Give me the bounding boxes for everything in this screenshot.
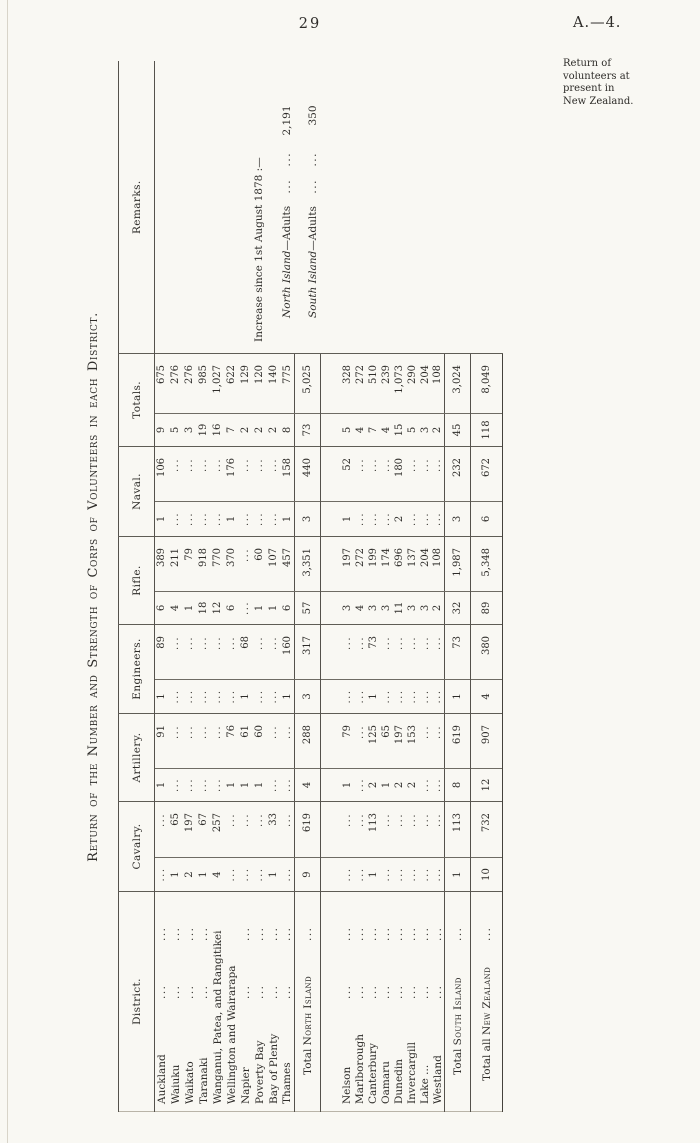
corps-count-cell: ... bbox=[354, 679, 367, 713]
strength-cell: ... bbox=[380, 624, 393, 679]
district-cell: Auckland...... bbox=[155, 892, 169, 1112]
remarks-content: Increase since 1st August 1878 :— North … bbox=[253, 71, 322, 342]
strength-cell: ... bbox=[253, 801, 267, 857]
strength-cell: 176 bbox=[225, 446, 239, 501]
strength-cell: 33 bbox=[267, 801, 281, 857]
strength-cell: 317 bbox=[295, 624, 321, 679]
strength-cell: 65 bbox=[380, 713, 393, 768]
strength-cell: ... bbox=[380, 801, 393, 857]
corps-count-cell: ... bbox=[380, 858, 393, 892]
strength-cell: 60 bbox=[253, 713, 267, 768]
strength-cell: 61 bbox=[239, 713, 253, 768]
corps-count-cell: 1 bbox=[197, 858, 211, 892]
col-header-district: District. bbox=[119, 892, 155, 1112]
corps-count-cell: 1 bbox=[267, 858, 281, 892]
strength-cell: ... bbox=[354, 713, 367, 768]
rotated-table-block: Return of the Number and Strength of Cor… bbox=[86, 62, 503, 1112]
corps-count-cell: 2 bbox=[253, 413, 267, 446]
district-cell: Westland...... bbox=[432, 892, 445, 1112]
corps-count-cell: 3 bbox=[419, 591, 432, 624]
strength-cell: ... bbox=[432, 713, 445, 768]
strength-cell: ... bbox=[341, 624, 354, 679]
strength-cell: 3,351 bbox=[295, 536, 321, 591]
corps-count-cell: 5 bbox=[169, 413, 183, 446]
corps-count-cell: ... bbox=[419, 768, 432, 801]
corps-count-cell: 4 bbox=[354, 591, 367, 624]
corps-count-cell: 2 bbox=[393, 501, 406, 536]
corps-count-cell: 4 bbox=[471, 679, 503, 713]
corps-count-cell: 1 bbox=[155, 679, 169, 713]
corps-count-cell: ... bbox=[183, 768, 197, 801]
strength-cell: 696 bbox=[393, 536, 406, 591]
strength-cell: 328 bbox=[341, 353, 354, 413]
corps-count-cell: ... bbox=[169, 768, 183, 801]
corps-count-cell: 7 bbox=[367, 413, 380, 446]
corps-count-cell: 2 bbox=[183, 858, 197, 892]
strength-cell: 272 bbox=[354, 353, 367, 413]
corps-count-cell: ... bbox=[267, 679, 281, 713]
corps-count-cell: 2 bbox=[406, 768, 419, 801]
corps-count-cell: ... bbox=[183, 679, 197, 713]
strength-cell: ... bbox=[341, 801, 354, 857]
district-cell: Wellington and Wairarapa bbox=[225, 892, 239, 1112]
strength-cell: ... bbox=[354, 801, 367, 857]
strength-cell: ... bbox=[169, 624, 183, 679]
corps-count-cell: 3 bbox=[406, 591, 419, 624]
district-cell: Total all New Zealand... bbox=[471, 892, 503, 1112]
corps-count-cell: ... bbox=[406, 858, 419, 892]
volunteers-table: District. Cavalry. Artillery. Engineers.… bbox=[118, 61, 503, 1112]
strength-cell: 79 bbox=[341, 713, 354, 768]
district-cell: Bay of Plenty...... bbox=[267, 892, 281, 1112]
corps-count-cell: ... bbox=[406, 501, 419, 536]
col-header-remarks: Remarks. bbox=[119, 61, 155, 353]
strength-cell: 158 bbox=[281, 446, 295, 501]
corps-count-cell: 8 bbox=[281, 413, 295, 446]
strength-cell: ... bbox=[267, 713, 281, 768]
corps-count-cell: 19 bbox=[197, 413, 211, 446]
strength-cell: 389 bbox=[155, 536, 169, 591]
strength-cell: 272 bbox=[354, 536, 367, 591]
corps-count-cell: 3 bbox=[295, 679, 321, 713]
strength-cell: 8,049 bbox=[471, 353, 503, 413]
corps-count-cell: 4 bbox=[295, 768, 321, 801]
strength-cell: 510 bbox=[367, 353, 380, 413]
strength-cell: ... bbox=[169, 446, 183, 501]
strength-cell: 775 bbox=[281, 353, 295, 413]
strength-cell: ... bbox=[406, 801, 419, 857]
strength-cell: 440 bbox=[295, 446, 321, 501]
strength-cell: ... bbox=[197, 446, 211, 501]
strength-cell: ... bbox=[155, 801, 169, 857]
corps-count-cell: 11 bbox=[393, 591, 406, 624]
district-cell: Total North Island... bbox=[295, 892, 321, 1112]
corps-count-cell: 3 bbox=[367, 591, 380, 624]
leader-dots: ... bbox=[279, 179, 296, 194]
strength-cell: 732 bbox=[471, 801, 503, 857]
strength-cell: ... bbox=[354, 446, 367, 501]
corps-count-cell: 5 bbox=[406, 413, 419, 446]
strength-cell: 619 bbox=[445, 713, 471, 768]
corps-count-cell: ... bbox=[253, 501, 267, 536]
col-header-rifle: Rifle. bbox=[119, 536, 155, 624]
corps-count-cell: ... bbox=[393, 679, 406, 713]
strength-cell: ... bbox=[380, 446, 393, 501]
strength-cell: 3,024 bbox=[445, 353, 471, 413]
strength-cell: 257 bbox=[211, 801, 225, 857]
district-cell: Total South Island... bbox=[445, 892, 471, 1112]
corps-count-cell: ... bbox=[341, 858, 354, 892]
leader-dots: ... bbox=[305, 179, 322, 194]
strength-cell: 108 bbox=[432, 353, 445, 413]
corps-count-cell: ... bbox=[341, 679, 354, 713]
document-page: 29 A.—4. Return of volunteers at present… bbox=[0, 0, 700, 1143]
strength-cell bbox=[321, 536, 341, 591]
strength-cell: 1,987 bbox=[445, 536, 471, 591]
page-number: 29 bbox=[0, 16, 620, 32]
corps-count-cell bbox=[321, 501, 341, 536]
corps-count-cell: 1 bbox=[169, 858, 183, 892]
strength-cell: 288 bbox=[295, 713, 321, 768]
corps-count-cell: ... bbox=[354, 501, 367, 536]
corps-count-cell: 1 bbox=[253, 591, 267, 624]
strength-cell: ... bbox=[239, 446, 253, 501]
strength-cell: ... bbox=[239, 801, 253, 857]
strength-cell: 153 bbox=[406, 713, 419, 768]
strength-cell: 113 bbox=[367, 801, 380, 857]
strength-cell: 211 bbox=[169, 536, 183, 591]
strength-cell: ... bbox=[281, 713, 295, 768]
col-header-totals: Totals. bbox=[119, 353, 155, 446]
corps-count-cell: ... bbox=[367, 501, 380, 536]
strength-cell: 52 bbox=[341, 446, 354, 501]
strength-cell: 1,027 bbox=[211, 353, 225, 413]
strength-cell: 672 bbox=[471, 446, 503, 501]
strength-cell: 907 bbox=[471, 713, 503, 768]
corps-count-cell: 1 bbox=[239, 679, 253, 713]
strength-cell: 60 bbox=[253, 536, 267, 591]
corps-count-cell: ... bbox=[155, 858, 169, 892]
strength-cell: 140 bbox=[267, 353, 281, 413]
corps-count-cell: ... bbox=[354, 768, 367, 801]
strength-cell: 89 bbox=[155, 624, 169, 679]
corps-count-cell: ... bbox=[281, 768, 295, 801]
corps-count-cell: ... bbox=[267, 768, 281, 801]
strength-cell: ... bbox=[253, 624, 267, 679]
corps-count-cell: 3 bbox=[380, 591, 393, 624]
strength-cell bbox=[321, 624, 341, 679]
corps-count-cell: ... bbox=[380, 679, 393, 713]
corps-count-cell: 8 bbox=[445, 768, 471, 801]
corps-count-cell: ... bbox=[406, 679, 419, 713]
corps-count-cell: ... bbox=[281, 858, 295, 892]
strength-cell: 65 bbox=[169, 801, 183, 857]
corps-count-cell: 1 bbox=[225, 501, 239, 536]
col-header-naval: Naval. bbox=[119, 446, 155, 536]
strength-cell: ... bbox=[419, 713, 432, 768]
corps-count-cell: ... bbox=[354, 858, 367, 892]
col-header-engineers: Engineers. bbox=[119, 624, 155, 713]
strength-cell: ... bbox=[239, 536, 253, 591]
corps-count-cell: 4 bbox=[380, 413, 393, 446]
corps-count-cell: ... bbox=[239, 858, 253, 892]
corps-count-cell: 3 bbox=[419, 413, 432, 446]
corps-count-cell: 1 bbox=[281, 501, 295, 536]
corps-count-cell: ... bbox=[432, 768, 445, 801]
corps-count-cell: 9 bbox=[155, 413, 169, 446]
corps-count-cell: 1 bbox=[380, 768, 393, 801]
strength-cell: 918 bbox=[197, 536, 211, 591]
strength-cell: 619 bbox=[295, 801, 321, 857]
district-cell: Thames...... bbox=[281, 892, 295, 1112]
corps-count-cell bbox=[321, 679, 341, 713]
corps-count-cell: 1 bbox=[225, 768, 239, 801]
strength-cell: 380 bbox=[471, 624, 503, 679]
strength-cell: 457 bbox=[281, 536, 295, 591]
strength-cell: ... bbox=[419, 624, 432, 679]
corps-count-cell: ... bbox=[253, 858, 267, 892]
strength-cell: ... bbox=[183, 446, 197, 501]
corps-count-cell: 6 bbox=[225, 591, 239, 624]
corps-count-cell: 12 bbox=[211, 591, 225, 624]
strength-cell: ... bbox=[267, 624, 281, 679]
strength-cell: 204 bbox=[419, 353, 432, 413]
strength-cell: ... bbox=[281, 801, 295, 857]
strength-cell: 106 bbox=[155, 446, 169, 501]
strength-cell: ... bbox=[169, 713, 183, 768]
strength-cell: ... bbox=[225, 624, 239, 679]
strength-cell: 125 bbox=[367, 713, 380, 768]
corps-count-cell: 4 bbox=[354, 413, 367, 446]
strength-cell: 770 bbox=[211, 536, 225, 591]
district-cell: Oamaru...... bbox=[380, 892, 393, 1112]
col-header-artillery: Artillery. bbox=[119, 713, 155, 801]
corps-count-cell: ... bbox=[419, 501, 432, 536]
strength-cell: 675 bbox=[155, 353, 169, 413]
corps-count-cell: 1 bbox=[445, 679, 471, 713]
strength-cell: ... bbox=[406, 446, 419, 501]
district-cell: Canterbury...... bbox=[367, 892, 380, 1112]
strength-cell: ... bbox=[393, 624, 406, 679]
strength-cell: ... bbox=[367, 446, 380, 501]
strength-cell: ... bbox=[197, 713, 211, 768]
corps-count-cell: ... bbox=[253, 679, 267, 713]
strength-cell: ... bbox=[432, 801, 445, 857]
corps-count-cell: 2 bbox=[393, 768, 406, 801]
corps-count-cell: 6 bbox=[281, 591, 295, 624]
corps-count-cell: 118 bbox=[471, 413, 503, 446]
corps-count-cell: 32 bbox=[445, 591, 471, 624]
corps-count-cell: 45 bbox=[445, 413, 471, 446]
strength-cell: ... bbox=[183, 713, 197, 768]
remarks-line-south: South Island—Adults ...... 350 bbox=[305, 105, 322, 318]
strength-cell: 79 bbox=[183, 536, 197, 591]
district-cell: Wanganui, Patea, and Rangitikei bbox=[211, 892, 225, 1112]
corps-count-cell: 2 bbox=[367, 768, 380, 801]
strength-cell: ... bbox=[393, 801, 406, 857]
district-cell: Taranaki...... bbox=[197, 892, 211, 1112]
district-cell: Marlborough...... bbox=[354, 892, 367, 1112]
strength-cell: ... bbox=[211, 446, 225, 501]
corps-count-cell: 3 bbox=[445, 501, 471, 536]
corps-count-cell: 1 bbox=[155, 768, 169, 801]
remarks-value: 350 bbox=[305, 105, 322, 139]
corps-count-cell: 2 bbox=[432, 591, 445, 624]
corps-count-cell: 6 bbox=[155, 591, 169, 624]
corps-count-cell: 1 bbox=[281, 679, 295, 713]
corps-count-cell: ... bbox=[211, 679, 225, 713]
col-header-cavalry: Cavalry. bbox=[119, 801, 155, 891]
corps-count-cell bbox=[321, 858, 341, 892]
strength-cell: ... bbox=[419, 801, 432, 857]
corps-count-cell: 4 bbox=[169, 591, 183, 624]
header-row: District. Cavalry. Artillery. Engineers.… bbox=[119, 61, 155, 1111]
strength-cell: 67 bbox=[197, 801, 211, 857]
table-title: Return of the Number and Strength of Cor… bbox=[86, 62, 108, 1112]
corps-count-cell: 9 bbox=[295, 858, 321, 892]
remarks-cell: Increase since 1st August 1878 :— North … bbox=[155, 61, 503, 353]
leader-dots: ... bbox=[279, 152, 296, 167]
corps-count-cell: 73 bbox=[295, 413, 321, 446]
corps-count-cell: 15 bbox=[393, 413, 406, 446]
strength-cell: 370 bbox=[225, 536, 239, 591]
strength-cell: 120 bbox=[253, 353, 267, 413]
strength-cell: 137 bbox=[406, 536, 419, 591]
strength-cell bbox=[321, 713, 341, 768]
corps-count-cell: 1 bbox=[367, 858, 380, 892]
remarks-heading: Increase since 1st August 1878 :— bbox=[253, 71, 265, 342]
strength-cell: 5,025 bbox=[295, 353, 321, 413]
district-cell: Waiuku...... bbox=[169, 892, 183, 1112]
district-cell: Poverty Bay...... bbox=[253, 892, 267, 1112]
corps-count-cell: ... bbox=[267, 501, 281, 536]
strength-cell: 199 bbox=[367, 536, 380, 591]
corps-count-cell: ... bbox=[432, 858, 445, 892]
strength-cell: 204 bbox=[419, 536, 432, 591]
margin-sidenote: Return of volunteers at present in New Z… bbox=[563, 58, 663, 108]
remarks-value: 2,191 bbox=[279, 105, 296, 139]
corps-count-cell: ... bbox=[197, 501, 211, 536]
paper-reference: A.—4. bbox=[573, 15, 621, 31]
corps-count-cell: ... bbox=[169, 679, 183, 713]
district-cell: Invercargill...... bbox=[406, 892, 419, 1112]
corps-count-cell bbox=[321, 591, 341, 624]
corps-count-cell: 18 bbox=[197, 591, 211, 624]
strength-cell: ... bbox=[432, 446, 445, 501]
corps-count-cell: 3 bbox=[341, 591, 354, 624]
strength-cell: 276 bbox=[183, 353, 197, 413]
strength-cell: 197 bbox=[393, 713, 406, 768]
corps-count-cell: 16 bbox=[211, 413, 225, 446]
corps-count-cell: 1 bbox=[445, 858, 471, 892]
corps-count-cell: 7 bbox=[225, 413, 239, 446]
strength-cell: 985 bbox=[197, 353, 211, 413]
corps-count-cell: ... bbox=[432, 501, 445, 536]
strength-cell: ... bbox=[406, 624, 419, 679]
strength-cell: 174 bbox=[380, 536, 393, 591]
strength-cell: 622 bbox=[225, 353, 239, 413]
district-cell: Waikato...... bbox=[183, 892, 197, 1112]
strength-cell: ... bbox=[253, 446, 267, 501]
strength-cell: ... bbox=[225, 801, 239, 857]
corps-count-cell: ... bbox=[419, 858, 432, 892]
leader-dots: ... bbox=[305, 152, 322, 167]
district-cell: Napier...... bbox=[239, 892, 253, 1112]
corps-count-cell: 1 bbox=[341, 768, 354, 801]
corps-count-cell: 1 bbox=[267, 591, 281, 624]
strength-cell: 232 bbox=[445, 446, 471, 501]
remarks-line-north: North Island—Adults ...... 2,191 bbox=[279, 105, 296, 318]
strength-cell: 197 bbox=[341, 536, 354, 591]
corps-count-cell: 1 bbox=[155, 501, 169, 536]
corps-count-cell: ... bbox=[239, 591, 253, 624]
strength-cell: 73 bbox=[445, 624, 471, 679]
corps-count-cell: ... bbox=[211, 768, 225, 801]
strength-cell: 129 bbox=[239, 353, 253, 413]
corps-count-cell: 3 bbox=[295, 501, 321, 536]
corps-count-cell: 1 bbox=[239, 768, 253, 801]
strength-cell: 91 bbox=[155, 713, 169, 768]
corps-count-cell: 10 bbox=[471, 858, 503, 892]
corps-count-cell: ... bbox=[380, 501, 393, 536]
strength-cell bbox=[321, 353, 341, 413]
strength-cell: ... bbox=[211, 713, 225, 768]
strength-cell bbox=[321, 446, 341, 501]
corps-count-cell: ... bbox=[197, 768, 211, 801]
strength-cell: 1,073 bbox=[393, 353, 406, 413]
strength-cell: 73 bbox=[367, 624, 380, 679]
corps-count-cell: ... bbox=[211, 501, 225, 536]
strength-cell: 76 bbox=[225, 713, 239, 768]
corps-count-cell: ... bbox=[183, 501, 197, 536]
corps-count-cell: 1 bbox=[183, 591, 197, 624]
strength-cell: 197 bbox=[183, 801, 197, 857]
strength-cell: ... bbox=[197, 624, 211, 679]
corps-count-cell: 6 bbox=[471, 501, 503, 536]
corps-count-cell: ... bbox=[197, 679, 211, 713]
strength-cell: 113 bbox=[445, 801, 471, 857]
corps-count-cell: 1 bbox=[253, 768, 267, 801]
corps-count-cell: ... bbox=[225, 679, 239, 713]
corps-count-cell: 12 bbox=[471, 768, 503, 801]
corps-count-cell: ... bbox=[432, 679, 445, 713]
strength-cell: 160 bbox=[281, 624, 295, 679]
corps-count-cell: ... bbox=[239, 501, 253, 536]
corps-count-cell: 2 bbox=[432, 413, 445, 446]
corps-count-cell: 2 bbox=[267, 413, 281, 446]
corps-count-cell: 1 bbox=[341, 501, 354, 536]
strength-cell bbox=[321, 801, 341, 857]
corps-count-cell: 2 bbox=[239, 413, 253, 446]
strength-cell: ... bbox=[211, 624, 225, 679]
strength-cell: 180 bbox=[393, 446, 406, 501]
corps-count-cell: ... bbox=[225, 858, 239, 892]
district-cell bbox=[321, 892, 341, 1112]
corps-count-cell: 1 bbox=[367, 679, 380, 713]
corps-count-cell: 3 bbox=[183, 413, 197, 446]
district-row: Auckland............191189638911069675 I… bbox=[155, 61, 169, 1111]
strength-cell: 68 bbox=[239, 624, 253, 679]
strength-cell: ... bbox=[419, 446, 432, 501]
strength-cell: 239 bbox=[380, 353, 393, 413]
strength-cell: 108 bbox=[432, 536, 445, 591]
corps-count-cell: ... bbox=[393, 858, 406, 892]
district-cell: Dunedin...... bbox=[393, 892, 406, 1112]
strength-cell: 290 bbox=[406, 353, 419, 413]
corps-count-cell: 5 bbox=[341, 413, 354, 446]
district-cell: Lake ......... bbox=[419, 892, 432, 1112]
district-cell: Nelson...... bbox=[341, 892, 354, 1112]
